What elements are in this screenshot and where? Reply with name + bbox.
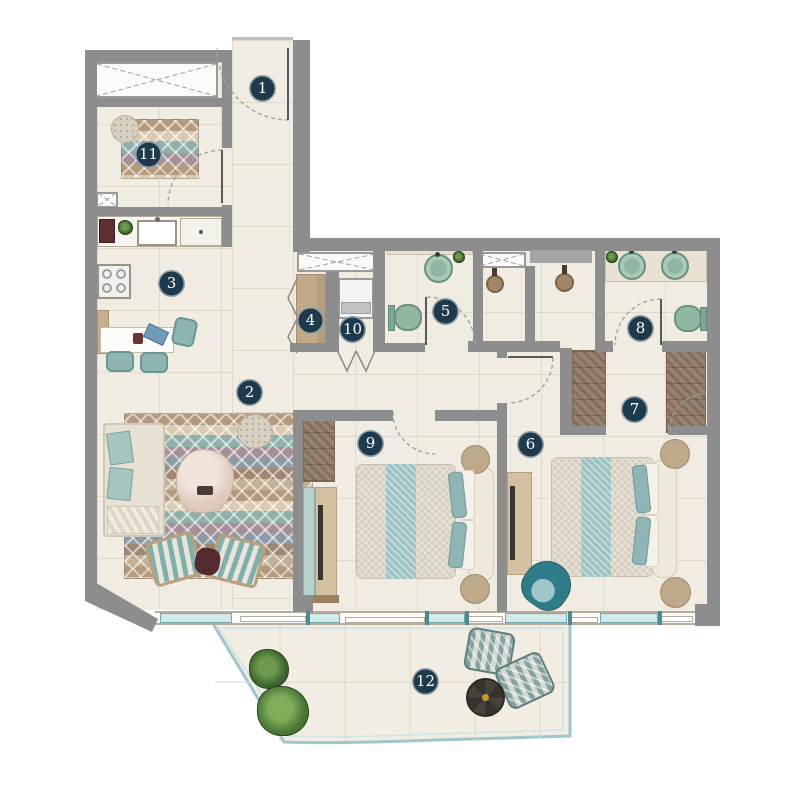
sliding-door-glass [160, 613, 232, 623]
throw-blanket [107, 506, 159, 534]
knob [199, 230, 203, 234]
plant [249, 649, 289, 689]
wall [595, 341, 613, 352]
wall [303, 595, 313, 612]
shaft-box [96, 192, 118, 208]
wall [373, 251, 385, 352]
wall [385, 343, 425, 352]
round-basin [424, 254, 453, 283]
wall [497, 341, 507, 358]
tv [510, 486, 515, 560]
sliding-door-panel [345, 617, 425, 623]
shower-head [486, 275, 504, 293]
washer-door [341, 302, 371, 314]
room-badge-bedroom-1[interactable]: 6 [517, 431, 544, 458]
room-badge-kitchen[interactable]: 3 [158, 270, 185, 297]
burner [116, 269, 126, 279]
wall [293, 413, 303, 612]
room-badge-living[interactable]: 2 [236, 379, 263, 406]
nightstand [460, 574, 490, 604]
plant [606, 251, 618, 263]
entry-door-lintel [232, 37, 293, 40]
room-badge-walkin[interactable]: 7 [621, 396, 648, 423]
wall [525, 266, 535, 343]
wall [293, 238, 720, 251]
basin-faucet [435, 252, 440, 257]
wall [293, 40, 310, 252]
wall [222, 62, 232, 148]
pouf [237, 414, 273, 449]
room-badge-closet[interactable]: 4 [297, 307, 324, 334]
wall [435, 410, 497, 421]
sliding-door-glass [427, 613, 465, 623]
wall [595, 251, 605, 352]
sofa-cushion [106, 430, 134, 465]
duct-block [530, 250, 592, 263]
faucet [155, 217, 160, 222]
bed-runner [386, 464, 416, 579]
window-mullion [306, 611, 310, 625]
nightstand [660, 439, 690, 469]
tv [318, 505, 323, 580]
plant [118, 220, 133, 235]
wall [707, 251, 720, 611]
window-mullion [425, 611, 429, 625]
wardrobe-hatch-entry [95, 62, 218, 98]
sliding-door-glass [308, 613, 340, 623]
burner [102, 283, 112, 293]
room-badge-laundry[interactable]: 10 [339, 316, 366, 343]
room-badge-bedroom-2[interactable]: 9 [357, 430, 384, 457]
plant [453, 251, 465, 263]
sliding-door-panel [570, 617, 598, 623]
red-accessory [133, 333, 143, 344]
toilet [394, 304, 422, 331]
coffee-machine [99, 219, 115, 243]
sliding-door-panel [660, 616, 693, 622]
wall [695, 604, 720, 626]
pouf [111, 115, 139, 143]
round-basin [661, 252, 689, 280]
sliding-door-panel [240, 616, 306, 622]
wall [293, 410, 393, 421]
burner [102, 269, 112, 279]
wall [85, 207, 230, 216]
wall [468, 341, 560, 352]
wall-cap [313, 595, 339, 603]
room-badge-study[interactable]: 11 [135, 141, 162, 168]
window-glass [600, 613, 658, 623]
window-mullion [465, 611, 469, 625]
tray [197, 486, 213, 495]
sliding-door-panel [468, 616, 503, 622]
room-badge-bathroom-2[interactable]: 8 [627, 315, 654, 342]
dining-chair [140, 352, 168, 373]
wall [560, 426, 606, 435]
mirror-panel [303, 487, 315, 599]
kitchen-sink [137, 220, 177, 246]
shower-arm [492, 267, 497, 276]
plant [257, 686, 309, 736]
burner [116, 283, 126, 293]
wardrobe [303, 418, 335, 482]
room-badge-entrance[interactable]: 1 [249, 75, 276, 102]
cooktop [97, 264, 131, 299]
wall [85, 50, 97, 593]
dining-chair [106, 351, 134, 372]
closet-hatch-hall [297, 252, 377, 272]
toilet-tank [700, 307, 707, 331]
shower-head [555, 273, 574, 292]
floor-plan: 1 2 3 4 5 6 7 8 9 10 11 12 [0, 0, 800, 800]
shower-arm [562, 265, 567, 274]
wall [560, 348, 572, 435]
toilet [674, 305, 702, 332]
sofa-cushion [106, 467, 133, 501]
wall [668, 426, 707, 435]
wall [497, 403, 507, 612]
room-badge-bathroom[interactable]: 5 [432, 298, 459, 325]
wall [326, 272, 339, 352]
sliding-door-glass [505, 613, 567, 623]
wall [290, 343, 330, 352]
closet-hatch-shower [478, 252, 526, 268]
wall [85, 50, 232, 62]
round-basin [618, 252, 646, 280]
room-badge-balcony[interactable]: 12 [412, 668, 439, 695]
wall [95, 98, 222, 107]
bed-runner [581, 457, 611, 577]
table-center [482, 694, 489, 701]
wardrobe [572, 350, 606, 433]
window-mullion [568, 611, 572, 625]
wall [473, 251, 483, 343]
window-mullion [658, 611, 662, 625]
wall [662, 341, 707, 352]
nightstand [660, 577, 691, 608]
wardrobe [666, 350, 706, 433]
